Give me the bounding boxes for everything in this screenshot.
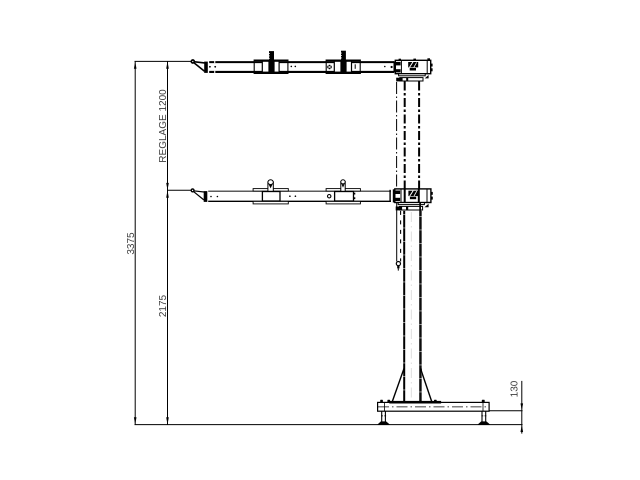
svg-text:2175: 2175: [158, 294, 169, 317]
svg-text:130: 130: [509, 380, 520, 397]
svg-text:REGLAGE 1200: REGLAGE 1200: [158, 89, 169, 163]
svg-text:3375: 3375: [126, 232, 137, 255]
